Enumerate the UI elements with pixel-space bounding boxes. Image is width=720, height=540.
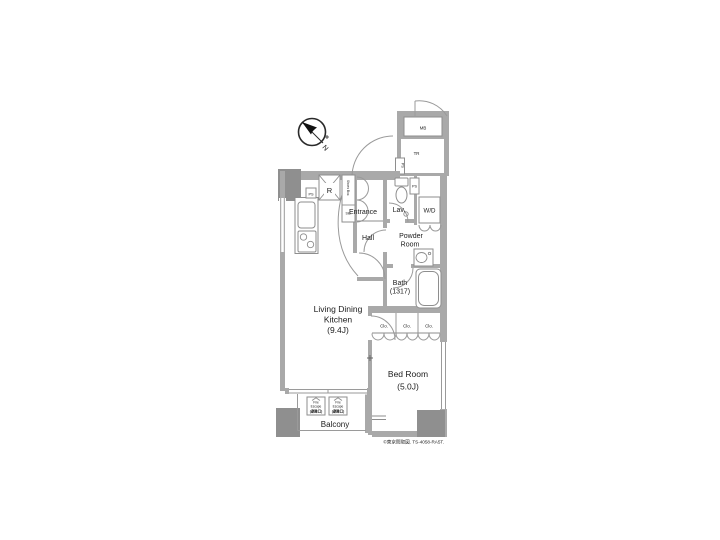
bedroom-window — [440, 342, 448, 409]
bath-label-2: (1317) — [390, 289, 410, 296]
wall-lav-bottom-left — [387, 219, 390, 223]
floorplan-page: N MB TR PS PS PS R Shoes Box Sto. Entran… — [0, 0, 720, 540]
pillar-bottom-right — [417, 410, 445, 437]
fire-escape-2-label-2: Escape — [333, 405, 344, 409]
pipe-space-lav-label: PS — [412, 185, 418, 189]
bedroom-label-2: (5.0J) — [397, 382, 419, 392]
washer-dryer-label: W/D — [423, 208, 436, 215]
ldk-label-1: Living Dining — [314, 304, 363, 314]
kitchen-stove-icon — [298, 231, 316, 252]
floorplan-drawing: N MB TR PS PS PS R Shoes Box Sto. Entran… — [0, 0, 720, 540]
wall-powder-bath-left — [387, 264, 393, 268]
shoes-box-door-upper — [357, 177, 368, 200]
fire-escape-1-label-2: Escape — [311, 405, 322, 409]
closet-label-1: Clo. — [380, 324, 388, 329]
balcony-partition-lines — [372, 416, 386, 420]
pipe-space-meter-label: PS — [401, 163, 405, 168]
balcony-label: Balcony — [321, 420, 349, 429]
refrigerator-label: R — [327, 186, 333, 195]
closet-folding-doors — [372, 334, 440, 341]
compass-icon — [299, 119, 330, 146]
shoes-box-label: Shoes Box — [346, 180, 350, 196]
powder-room-label-2: Room — [401, 242, 420, 249]
kitchen-counter — [295, 198, 318, 254]
kitchen-sink-icon — [298, 202, 315, 228]
trunk-room — [401, 139, 444, 173]
lavatory-label: Lav. — [393, 207, 406, 214]
bedroom-label-1: Bed Room — [388, 369, 428, 379]
ldk-label-2: Kitchen — [324, 315, 353, 325]
kitchen-window — [279, 198, 286, 252]
fire-escape-2-label-3: (避難口) — [332, 409, 344, 414]
compass-north-label: N — [321, 144, 330, 152]
closet-label-2: Clo. — [403, 324, 411, 329]
bath-label-1: Bath — [393, 280, 408, 287]
wall-ldk-bedroom — [368, 340, 372, 435]
pillar-bottom-left — [276, 408, 300, 437]
washbasin-icon — [414, 249, 433, 266]
balcony-sliding-window — [289, 388, 367, 395]
powder-room-label-1: Powder — [399, 233, 423, 240]
entrance-label: Entrance — [349, 209, 377, 216]
wall-marker-cross — [367, 355, 373, 361]
wall-ldk-bath — [383, 277, 387, 310]
wall-lav-bottom-right — [405, 219, 414, 223]
ldk-door-swing — [359, 253, 385, 279]
footer-copyright: ©東京間取図. TS-4058-RA5T. — [383, 439, 444, 446]
pipe-space-kitchen-label: PS — [308, 192, 314, 196]
front-door-swing — [352, 136, 393, 177]
closet-label-3: Clo. — [425, 324, 433, 329]
toilet-icon — [395, 178, 408, 203]
meter-box-label: MB — [420, 126, 427, 131]
ldk-label-3: (9.4J) — [327, 325, 349, 335]
wall-hall-bottom — [357, 277, 387, 281]
bathtub-icon — [416, 269, 441, 308]
trunk-room-label: TR — [414, 151, 420, 156]
wall-hall-lav-upper — [383, 175, 387, 228]
hall-label: Hall — [362, 235, 375, 242]
fire-escape-1-label-3: (避難口) — [310, 409, 322, 414]
